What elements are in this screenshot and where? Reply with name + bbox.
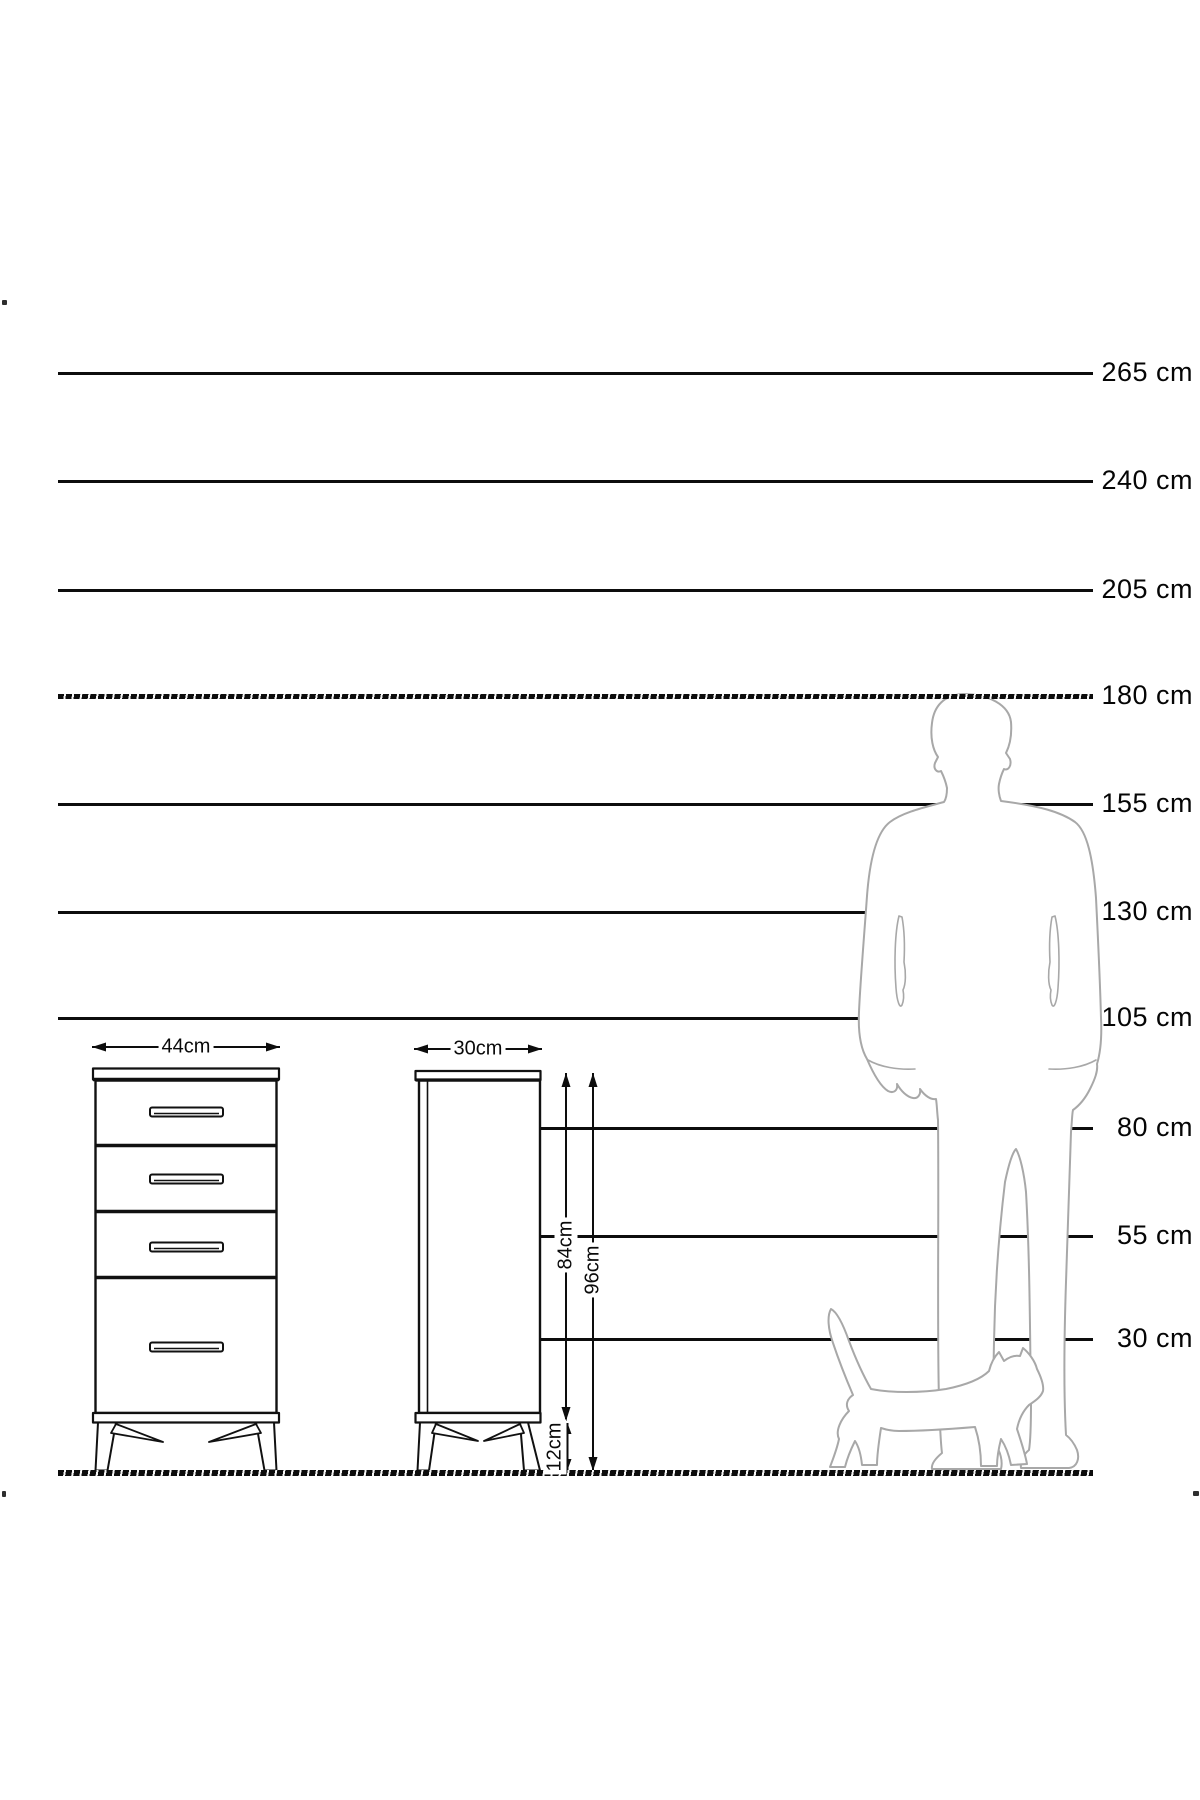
front-width-label: 44cm bbox=[159, 1036, 214, 1059]
drawer-handle-4 bbox=[150, 1343, 223, 1352]
stray-mark-bottom-left bbox=[2, 1491, 6, 1497]
arrow-left-icon bbox=[92, 1043, 106, 1052]
carcass-height-label: 84cm bbox=[555, 1218, 578, 1273]
front-base-strip bbox=[93, 1413, 279, 1423]
chest-front-view bbox=[93, 1069, 279, 1471]
cat-body-outline bbox=[829, 1309, 1044, 1467]
arrow-left-icon bbox=[414, 1045, 428, 1054]
scale-label-180: 180 cm bbox=[1050, 680, 1193, 711]
cat-silhouette bbox=[829, 1309, 1044, 1467]
drawer-handle-2 bbox=[150, 1175, 223, 1184]
side-body bbox=[419, 1081, 540, 1414]
arrow-right-icon bbox=[266, 1043, 280, 1052]
side-right-leg-brace bbox=[484, 1424, 524, 1441]
ground-line bbox=[58, 1470, 1093, 1476]
scale-label-105: 105 cm bbox=[1050, 1002, 1193, 1033]
scale-label-240: 240 cm bbox=[1050, 465, 1193, 496]
arrow-up-icon bbox=[589, 1073, 598, 1087]
side-left-leg-brace bbox=[432, 1424, 478, 1441]
height-line-180 bbox=[58, 694, 1093, 699]
drawer-handle-3 bbox=[150, 1243, 223, 1252]
drawer-handle-1 bbox=[150, 1108, 223, 1117]
side-base-strip bbox=[416, 1413, 541, 1423]
diagram-drawing bbox=[0, 0, 1200, 1800]
scale-label-265: 265 cm bbox=[1050, 357, 1193, 388]
stray-mark-bottom-right bbox=[1193, 1491, 1199, 1496]
arrow-down-icon bbox=[589, 1457, 598, 1471]
front-right-leg-brace bbox=[209, 1424, 261, 1442]
scale-label-155: 155 cm bbox=[1050, 788, 1193, 819]
arrow-up-icon bbox=[562, 1073, 571, 1087]
scale-label-130: 130 cm bbox=[1050, 896, 1193, 927]
scale-label-80: 80 cm bbox=[1050, 1112, 1193, 1143]
front-left-leg-brace bbox=[111, 1424, 163, 1442]
man-right-hand-slit bbox=[1049, 916, 1059, 1006]
leg-height-label: 12cm bbox=[544, 1420, 567, 1475]
man-left-hand-slit bbox=[895, 916, 905, 1006]
side-depth-label: 30cm bbox=[451, 1038, 506, 1061]
arrow-right-icon bbox=[528, 1045, 542, 1054]
chest-side-view bbox=[416, 1071, 541, 1471]
scale-label-30: 30 cm bbox=[1050, 1323, 1193, 1354]
scale-label-205: 205 cm bbox=[1050, 574, 1193, 605]
stray-mark-top-left bbox=[2, 300, 7, 305]
height-comparison-diagram: 265 cm 240 cm 205 cm 180 cm 155 cm 130 c… bbox=[0, 0, 1200, 1800]
total-height-label: 96cm bbox=[582, 1243, 605, 1298]
scale-label-55: 55 cm bbox=[1050, 1220, 1193, 1251]
